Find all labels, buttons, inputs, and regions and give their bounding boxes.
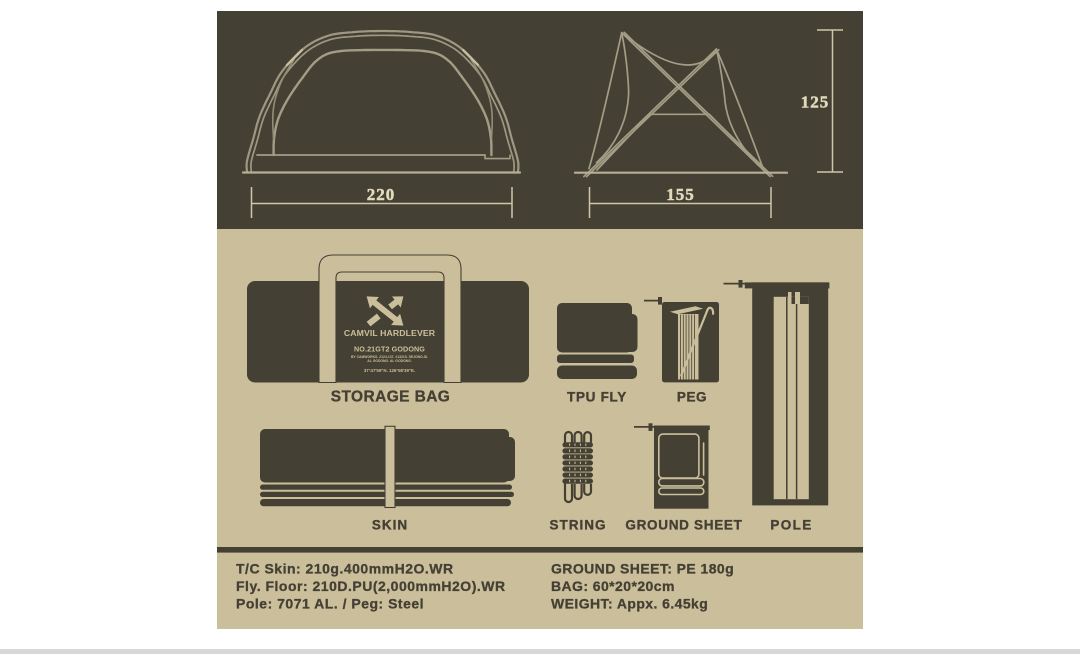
- svg-text:T/C Skin: 210g.400mmH2O.WR: T/C Skin: 210g.400mmH2O.WR: [236, 561, 454, 577]
- svg-text:GROUND SHEET: GROUND SHEET: [625, 518, 742, 533]
- svg-text:220: 220: [367, 185, 396, 204]
- svg-text:POLE: POLE: [770, 518, 812, 533]
- svg-text:WEIGHT: Appx. 6.45kg: WEIGHT: Appx. 6.45kg: [551, 596, 708, 612]
- svg-text:GROUND SHEET: PE 180g: GROUND SHEET: PE 180g: [551, 561, 734, 577]
- svg-text:SKIN: SKIN: [372, 518, 408, 533]
- svg-text:37°47'59"N. 126°58'39"E.: 37°47'59"N. 126°58'39"E.: [364, 368, 415, 373]
- svg-text:NO.21GT2 GODONG: NO.21GT2 GODONG: [354, 345, 425, 354]
- svg-text:STORAGE BAG: STORAGE BAG: [331, 389, 451, 406]
- svg-text:CAMVIL HARDLEVER: CAMVIL HARDLEVER: [344, 328, 436, 338]
- svg-text:TPU FLY: TPU FLY: [567, 390, 627, 405]
- svg-text:AL GODONG. AL GODONG.: AL GODONG. AL GODONG.: [367, 359, 411, 363]
- svg-text:BAG: 60*20*20cm: BAG: 60*20*20cm: [551, 578, 675, 594]
- svg-text:Fly. Floor: 210D.PU(2,000mmH2O: Fly. Floor: 210D.PU(2,000mmH2O).WR: [236, 578, 506, 594]
- svg-text:STRING: STRING: [549, 518, 606, 533]
- svg-text:Pole: 7071 AL. / Peg: Steel: Pole: 7071 AL. / Peg: Steel: [236, 596, 424, 612]
- svg-text:125: 125: [801, 93, 830, 112]
- svg-text:155: 155: [666, 185, 695, 204]
- svg-text:PEG: PEG: [677, 390, 707, 405]
